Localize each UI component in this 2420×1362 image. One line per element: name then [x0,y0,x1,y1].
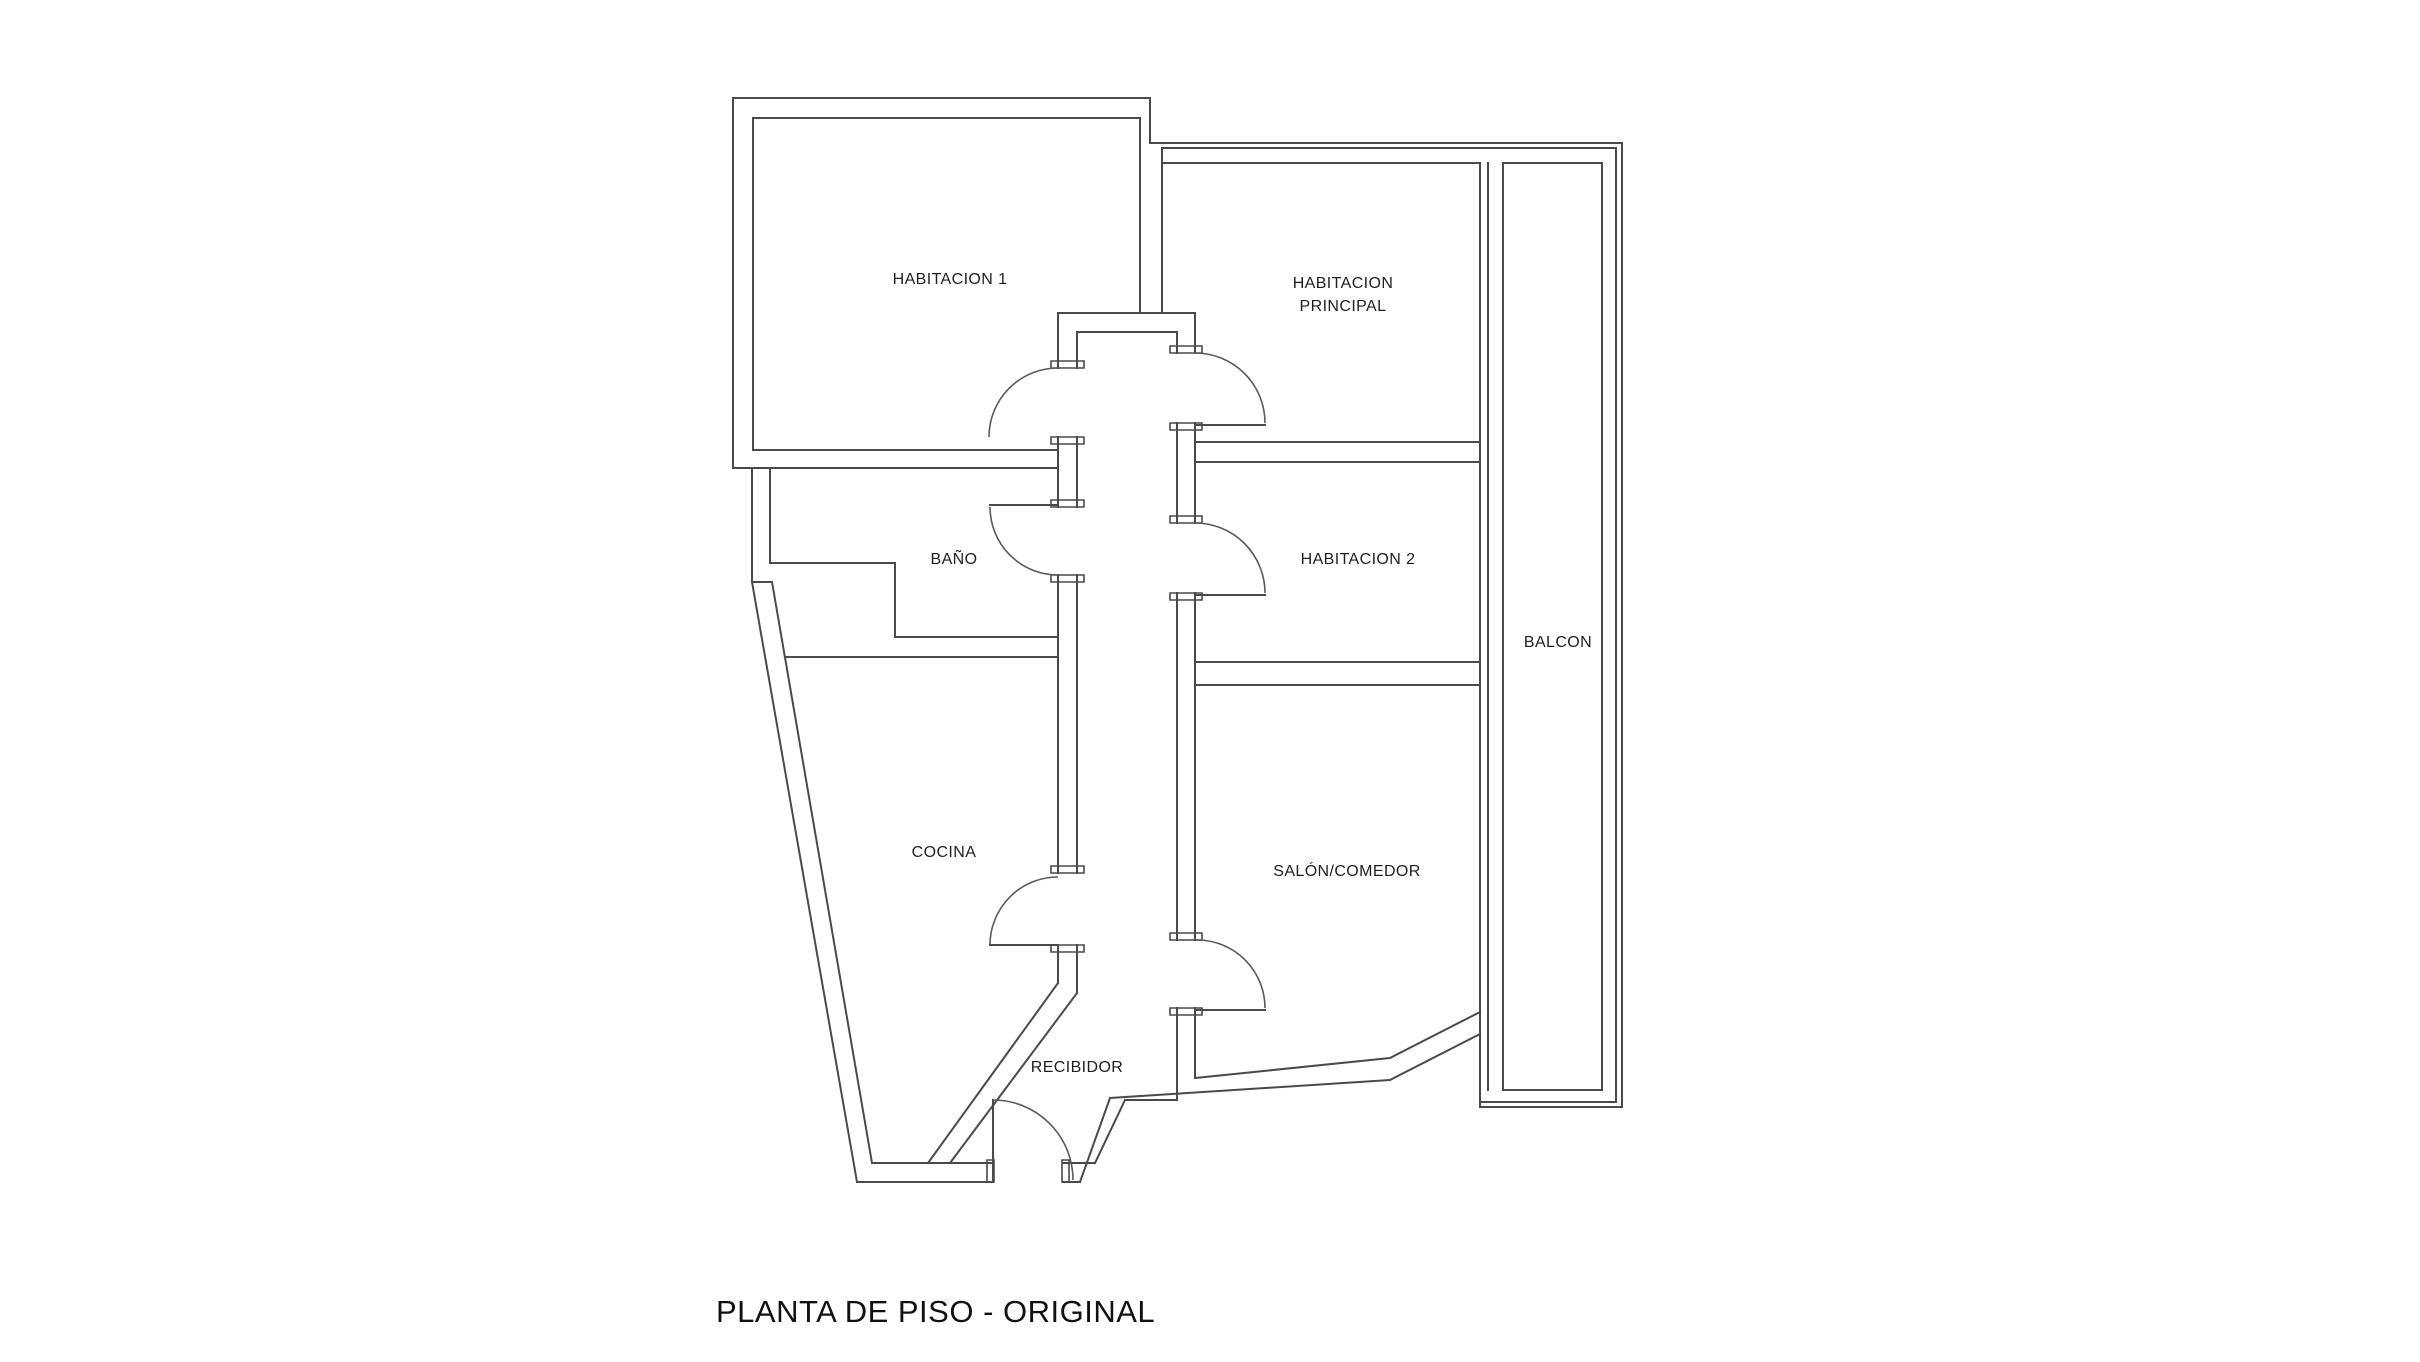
habitacion-2-door-arc [1195,523,1265,593]
salon-door-arc [1197,940,1265,1008]
room-label-recibidor: RECIBIDOR [1031,1059,1124,1076]
room-label-habitacion-principal-line1: HABITACION [1293,275,1394,292]
floor-plan-drawing: HABITACION 1 HABITACION PRINCIPAL HABITA… [0,0,2420,1362]
door-jamb-ticks [987,346,1202,1182]
room-label-balcon: BALCON [1524,634,1592,651]
room-label-bano: BAÑO [931,548,978,568]
habitacion-principal-door-arc [1195,353,1265,423]
exterior-and-partition-walls [733,98,1622,1182]
cocina-door-arc [990,877,1058,945]
entry-door-arc [993,1100,1073,1180]
walls-layer [733,98,1622,1182]
habitacion-1-door-arc [989,368,1058,437]
drawing-title: PLANTA DE PISO - ORIGINAL [716,1294,1155,1329]
bano-door-arc [990,507,1058,575]
room-label-habitacion-1: HABITACION 1 [893,271,1008,288]
room-label-habitacion-2: HABITACION 2 [1301,551,1416,568]
room-label-salon-comedor: SALÓN/COMEDOR [1273,861,1420,880]
floor-plan-page: HABITACION 1 HABITACION PRINCIPAL HABITA… [0,0,2420,1362]
room-label-cocina: COCINA [912,844,977,861]
room-label-habitacion-principal-line2: PRINCIPAL [1300,298,1387,315]
